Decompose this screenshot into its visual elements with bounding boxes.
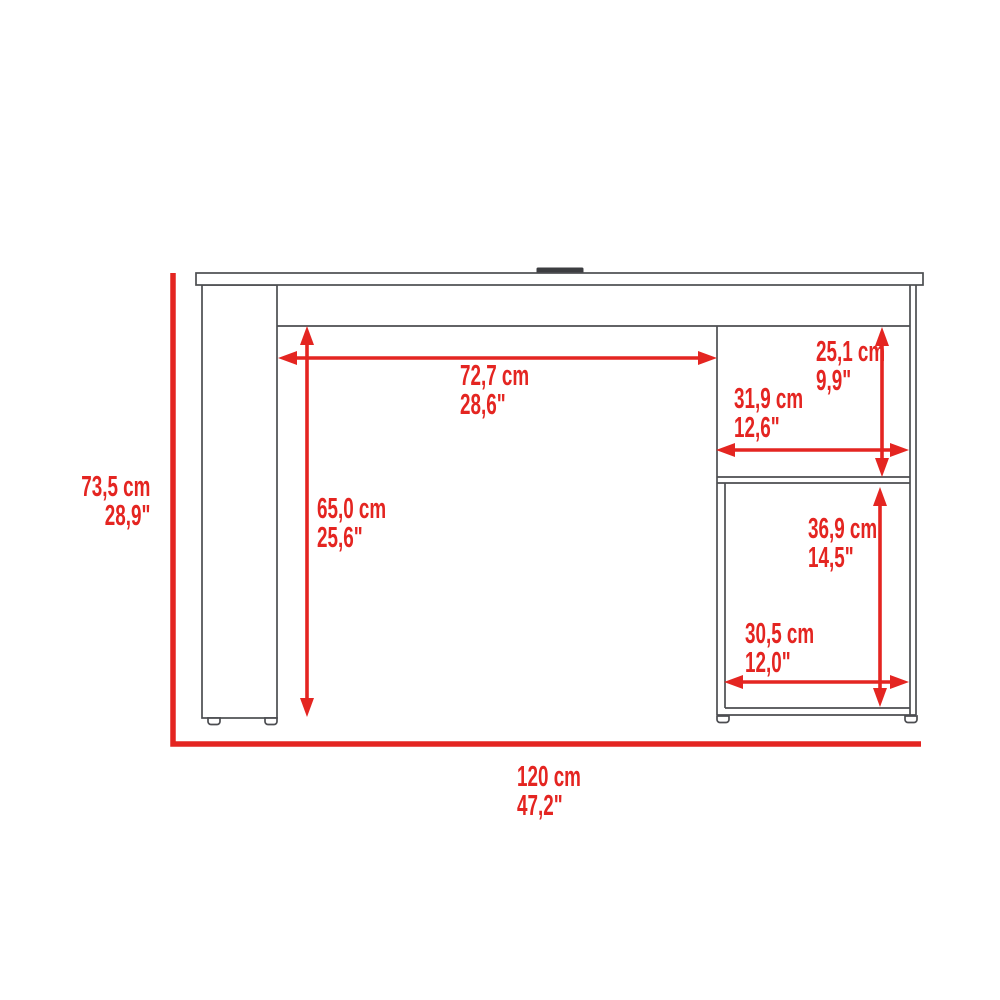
desk-tabletop: [196, 273, 923, 285]
dimension-inch-value: 25,6": [317, 524, 386, 553]
dimension-label-upper-shelf-width: 31,9 cm 12,6": [734, 385, 803, 443]
dimension-label-lower-shelf-width: 30,5 cm 12,0": [745, 620, 814, 678]
dimension-inch-value: 9,9": [816, 367, 885, 396]
dimension-inch-value: 28,9": [81, 502, 150, 531]
dimension-label-upper-shelf-height: 25,1 cm 9,9": [816, 338, 885, 396]
cabinet-foot: [717, 716, 729, 723]
dimension-cm-value: 120 cm: [517, 763, 581, 792]
dimension-diagram-canvas: 73,5 cm 28,9" 120 cm 47,2" 72,7 cm 28,6"…: [0, 0, 1000, 1000]
leg-foot: [208, 718, 220, 725]
dimension-inch-value: 28,6": [460, 391, 529, 420]
dimension-inch-value: 12,0": [745, 649, 814, 678]
leg-foot: [265, 718, 277, 725]
dimension-label-desktop-clearance-height: 65,0 cm 25,6": [317, 495, 386, 553]
dimension-inch-value: 47,2": [517, 792, 581, 821]
desk-feet: [208, 716, 917, 725]
dimension-arrow-upper-shelf-width: [716, 443, 909, 457]
dimension-label-lower-shelf-height: 36,9 cm 14,5": [808, 515, 877, 573]
dimension-cm-value: 25,1 cm: [816, 338, 885, 367]
dimension-inch-value: 12,6": [734, 414, 803, 443]
cabinet-foot: [905, 716, 917, 723]
dimension-cm-value: 36,9 cm: [808, 515, 877, 544]
dimension-label-overall-height: 73,5 cm 28,9": [81, 473, 150, 531]
dimension-cm-value: 30,5 cm: [745, 620, 814, 649]
dimension-label-desktop-clearance-width: 72,7 cm 28,6": [460, 362, 529, 420]
dimension-cm-value: 73,5 cm: [81, 473, 150, 502]
dimension-cm-value: 72,7 cm: [460, 362, 529, 391]
desk-left-leg-panel: [202, 285, 277, 718]
dimension-cm-value: 31,9 cm: [734, 385, 803, 414]
dimension-arrow-desktop-clearance-height: [300, 326, 314, 717]
dimension-inch-value: 14,5": [808, 544, 877, 573]
dimension-cm-value: 65,0 cm: [317, 495, 386, 524]
dimension-label-overall-width: 120 cm 47,2": [517, 763, 581, 821]
